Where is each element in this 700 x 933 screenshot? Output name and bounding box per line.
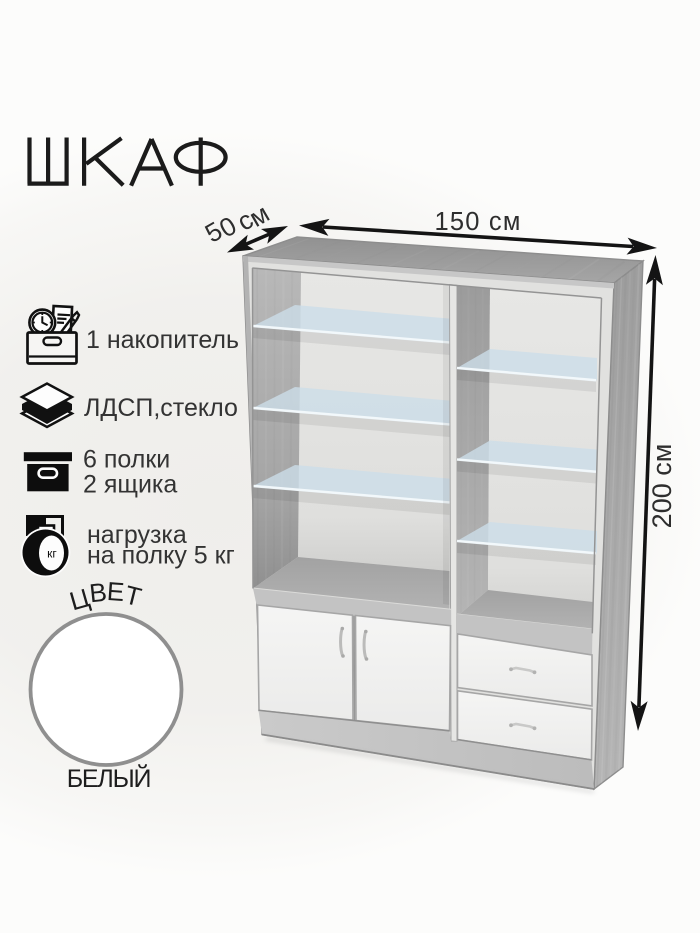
- svg-text:ЛДСП,стекло: ЛДСП,стекло: [84, 394, 238, 422]
- svg-text:6 полки: 6 полки: [83, 446, 170, 474]
- svg-text:на полку 5 кг: на полку 5 кг: [87, 542, 235, 570]
- svg-text:кг: кг: [47, 547, 57, 561]
- svg-text:БЕЛЫЙ: БЕЛЫЙ: [67, 763, 151, 793]
- svg-text:200 см: 200 см: [647, 444, 677, 529]
- svg-text:2 ящика: 2 ящика: [83, 471, 177, 499]
- svg-text:1 накопитель: 1 накопитель: [86, 326, 239, 354]
- svg-text:150 см: 150 см: [434, 208, 521, 236]
